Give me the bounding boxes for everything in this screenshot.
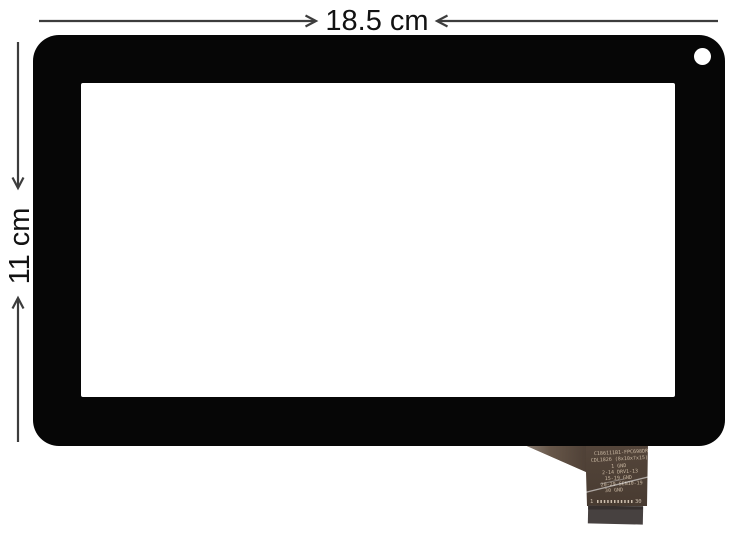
flex-cable: C186111B1-FPC698DR CDL1826 (8x10x7x15) 1…	[512, 436, 657, 528]
screen-area	[81, 83, 675, 397]
digitizer-frame	[33, 35, 725, 446]
arrow-left-icon	[437, 16, 448, 27]
cable-pinmap-line-5: 30 GND	[605, 487, 623, 494]
cable-flare	[520, 443, 586, 472]
arrow-down-icon	[13, 178, 24, 189]
height-dimension: 11 cm	[4, 42, 36, 442]
width-dimension-label: 18.5 cm	[325, 5, 428, 37]
camera-hole	[694, 48, 711, 65]
width-dimension: 18.5 cm	[39, 5, 718, 37]
product-photo: C186111B1-FPC698DR CDL1826 (8x10x7x15) 1…	[0, 0, 750, 550]
pin-number-first: 1	[590, 499, 593, 505]
pin-number-last: 30	[635, 499, 642, 505]
height-dimension-label: 11 cm	[4, 208, 36, 285]
connector-stiffener-edge	[588, 506, 643, 510]
arrow-right-icon	[306, 16, 317, 27]
arrow-up-icon	[13, 298, 24, 309]
